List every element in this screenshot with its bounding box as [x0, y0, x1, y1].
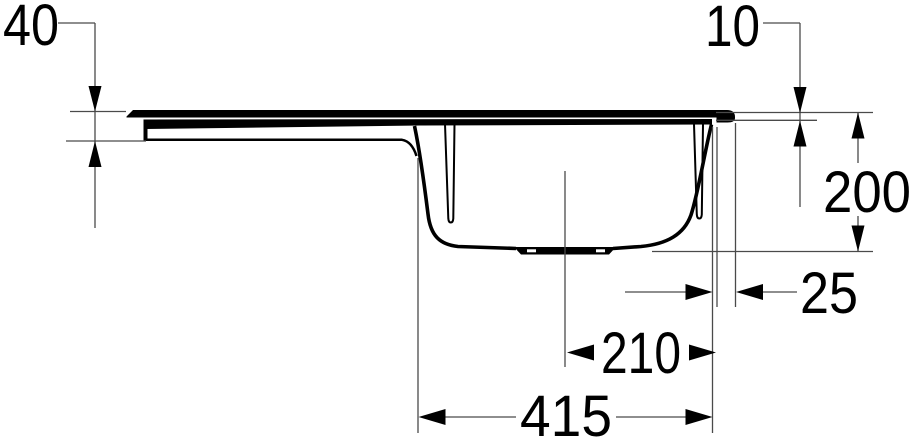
dim-415-arrow-left [419, 409, 446, 425]
dim-label-415: 415 [520, 384, 612, 438]
sink-profile [127, 110, 736, 255]
dim-label-25: 25 [800, 261, 858, 326]
dim-10-arrow-up [794, 121, 807, 147]
drainboard-surface [146, 119, 712, 129]
dimension-210: 210 [567, 321, 716, 386]
dim-40-arrow-down [89, 86, 102, 112]
extension-lines [66, 112, 873, 434]
dim-label-200: 200 [823, 160, 911, 225]
dim-200-arrow-down [852, 226, 865, 252]
dim-label-10: 10 [705, 0, 760, 59]
dim-200-arrow-up [852, 113, 865, 139]
dim-25-arrow-left [736, 284, 763, 300]
bowl-outline-left [415, 126, 517, 249]
dimension-25: 25 [625, 261, 858, 326]
dim-25-arrow-right [686, 284, 713, 300]
dimension-40: 40 [3, 0, 102, 228]
dimension-200: 200 [823, 113, 911, 252]
drain-notch-right [596, 249, 605, 252]
drainboard-underside [145, 140, 417, 156]
dimension-10: 10 [705, 0, 807, 207]
dim-210-arrow-left [567, 345, 594, 361]
drawing-canvas: 40 10 200 25 210 415 [0, 0, 920, 438]
drawing-page: 40 10 200 25 210 415 [0, 0, 920, 438]
dim-40-leader [58, 23, 95, 228]
dim-10-arrow-down [794, 87, 807, 113]
dim-label-40: 40 [3, 0, 59, 58]
dim-10-leader [763, 23, 800, 207]
dim-415-arrow-right [686, 409, 713, 425]
bowl-inner-wall-left [445, 124, 455, 223]
drain-notch-left [527, 249, 536, 252]
dim-40-arrow-up [89, 141, 102, 167]
dim-label-210: 210 [601, 321, 681, 386]
drainboard-lip [144, 120, 148, 141]
dimension-415: 415 [419, 384, 713, 438]
